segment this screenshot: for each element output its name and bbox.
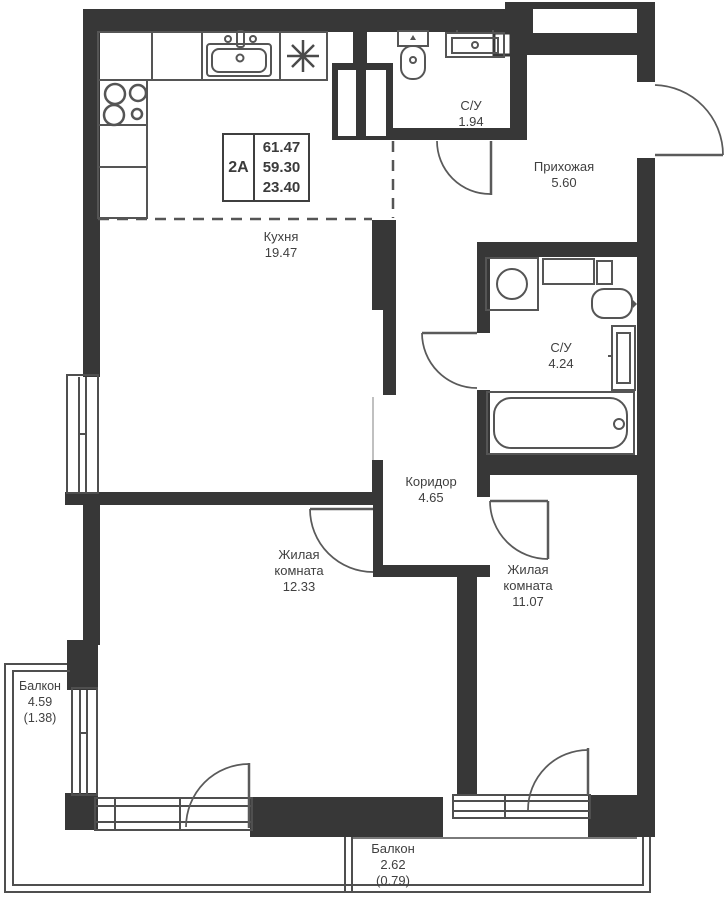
walls (65, 2, 655, 837)
label-hallway: Прихожая 5.60 (534, 159, 594, 191)
label-bathroom-small: С/У 1.94 (458, 98, 483, 130)
apartment-info-box: 2А 61.47 59.30 23.40 (222, 133, 310, 202)
floor-plan-drawing (0, 0, 726, 900)
ventilation-star-icon (287, 40, 319, 72)
living-area: 59.30 (263, 159, 301, 176)
floor-plan: 2А 61.47 59.30 23.40 Кухня 19.47 С/У 1.9… (0, 0, 726, 900)
label-corridor: Коридор 4.65 (405, 474, 456, 506)
label-bathroom-large: С/У 4.24 (548, 340, 573, 372)
label-balcony-bottom: Балкон 2.62 (0.79) (371, 841, 415, 889)
balcony-outlines (5, 664, 650, 892)
toilet (398, 31, 428, 79)
towel-rail (608, 326, 635, 390)
label-kitchen: Кухня 19.47 (264, 229, 299, 261)
label-living-room-2: Жилая комната 11.07 (503, 562, 552, 610)
washing-machine (486, 258, 538, 310)
bathroom-large-sink (592, 289, 637, 318)
stove-burners (104, 84, 146, 125)
label-living-room-1: Жилая комната 12.33 (274, 547, 323, 595)
bathtub (487, 392, 634, 454)
kitchen-sink (207, 31, 271, 76)
bathroom-counter (543, 259, 612, 284)
kitchen-area: 23.40 (263, 179, 301, 196)
apartment-type: 2А (224, 135, 255, 200)
total-area: 61.47 (263, 139, 301, 156)
label-balcony-left: Балкон 4.59 (1.38) (19, 678, 61, 726)
apartment-areas: 61.47 59.30 23.40 (255, 135, 308, 200)
